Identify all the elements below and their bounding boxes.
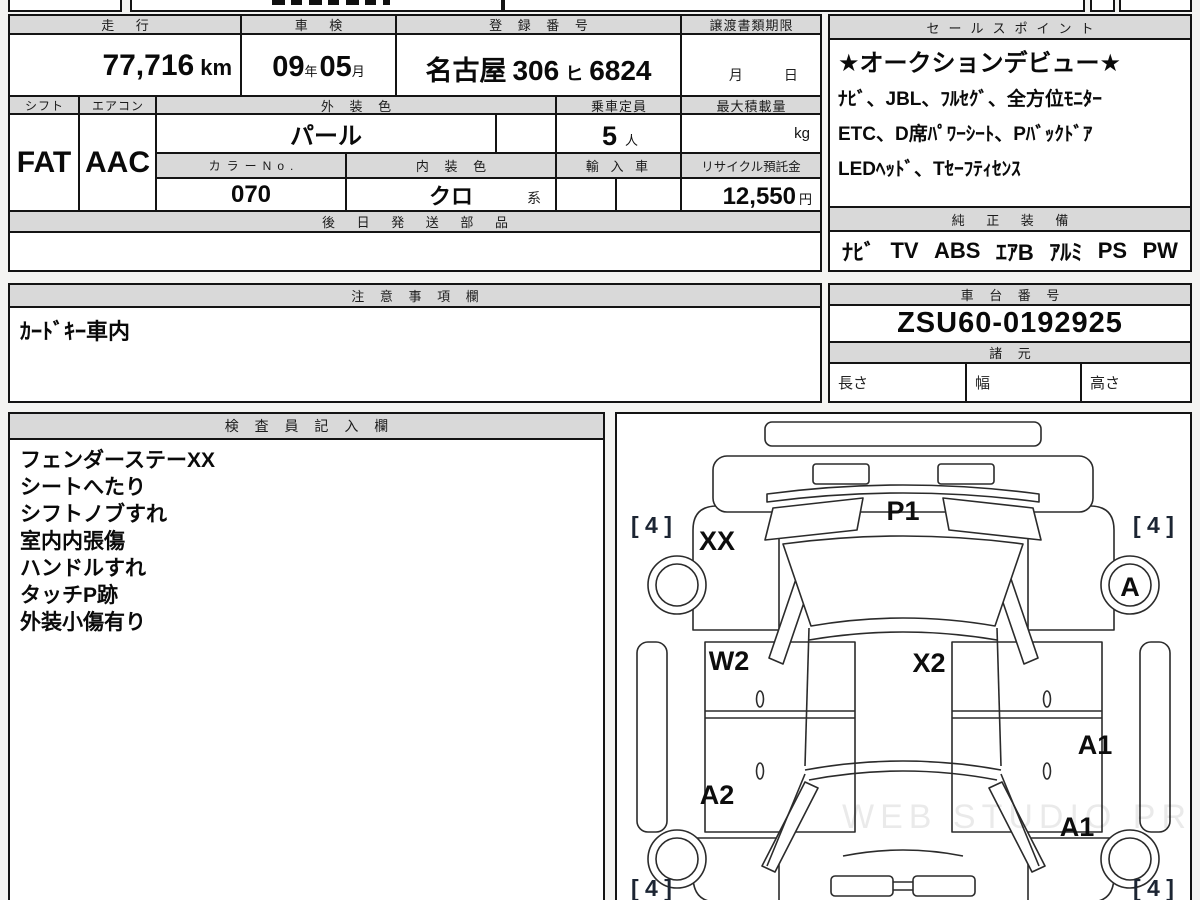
inspector-line: 室内内張傷 [20, 528, 125, 555]
inspection-year-unit: 年 [304, 61, 317, 80]
cutoff-row-cell [130, 0, 503, 12]
door-handle-front-left [757, 691, 764, 707]
mileage-header: 走 行 [10, 16, 242, 35]
bumper-inset-right [938, 464, 994, 484]
max-load-header: 最大積載量 [682, 97, 820, 115]
windshield [783, 536, 1023, 626]
diagram-label-xx: XX [699, 526, 735, 556]
car-damage-diagram: WEB STUDIO PRO P1 XX A X2 W2 A2 A1 A1 [ … [617, 414, 1190, 900]
tread-depth-front-right: [ 4 ] [1133, 512, 1174, 538]
notes-panel: 注 意 事 項 欄 ｶｰﾄﾞｷｰ車内 [8, 283, 822, 403]
door-handle-rear-right [1044, 763, 1051, 779]
diagram-label-a: A [1120, 572, 1140, 602]
cutoff-row-cell [1090, 0, 1115, 12]
inspector-header: 検 査 員 記 入 欄 [10, 414, 603, 440]
inspection-header: 車 検 [242, 16, 397, 35]
rocker-strip-left [637, 642, 667, 832]
sales-line: LEDﾍｯﾄﾞ、Tｾｰﾌﾃｨｾﾝｽ [838, 152, 1021, 187]
cutoff-row-cell [1119, 0, 1192, 12]
aircon-value: AAC [85, 146, 150, 180]
capacity-unit: 人 [625, 130, 638, 149]
fender-rear-left [693, 838, 779, 900]
sales-points-header: セールスポイント [830, 16, 1190, 40]
exterior-color-cell: パール [157, 115, 497, 154]
transfer-month-label: 月 [729, 65, 743, 85]
import-car-cell-a [557, 179, 617, 212]
door-handle-front-right [1044, 691, 1051, 707]
bumper-inset-left [813, 464, 869, 484]
equipment-header: 純 正 装 備 [830, 208, 1190, 232]
equipment-item: ABS [934, 238, 980, 264]
interior-color-suffix: 系 [527, 188, 541, 208]
spec-length-cell: 長さ [830, 364, 967, 401]
inspection-year: 09 [272, 51, 304, 84]
import-car-cell-b [617, 179, 682, 212]
color-no-cell: 070 [157, 179, 347, 212]
inspector-line: 外装小傷有り [20, 609, 146, 636]
interior-color-value: クロ [429, 179, 473, 211]
inspector-line: シートへたり [20, 474, 146, 501]
cutoff-row-cell [503, 0, 1085, 12]
cowl-arc [809, 632, 997, 640]
interior-color-header: 内 装 色 [347, 154, 557, 179]
recycle-unit: 円 [799, 189, 812, 208]
notes-header: 注 意 事 項 欄 [10, 285, 820, 308]
later-parts-body [10, 233, 820, 270]
diagram-label-x2: X2 [912, 648, 945, 678]
mileage-unit: km [200, 55, 232, 81]
door-handle-rear-left [757, 763, 764, 779]
equipment-item: ｱﾙﾐ [1049, 235, 1082, 267]
exterior-color-value: パール [290, 116, 362, 151]
equipment-item: ﾅﾋﾞ [842, 235, 875, 267]
inspector-body: フェンダーステーXX シートへたり シフトノブすれ 室内内張傷 ハンドルすれ タ… [10, 440, 603, 900]
plate-city: 名古屋 [425, 49, 506, 88]
tread-depth-rear-right: [ 4 ] [1133, 875, 1174, 900]
equipment-item: ｴｱB [996, 235, 1034, 267]
fender-front-left [693, 506, 779, 630]
equipment-item: TV [890, 238, 918, 264]
equipment-item: PS [1098, 238, 1127, 264]
max-load-cell: kg [682, 115, 820, 154]
rear-bumper [831, 876, 975, 896]
cutoff-row-cell [8, 0, 122, 12]
main-table: 走 行 車 検 登 録 番 号 譲渡書類期限 77,716 km 09 年 05… [8, 14, 822, 272]
shift-value-cell: FAT [10, 115, 80, 212]
transfer-deadline-cell: 月 日 [682, 35, 820, 97]
diagram-label-w2: W2 [709, 646, 750, 676]
recycle-amount: 12,550 [723, 183, 796, 211]
diagram-label-a1-lower: A1 [1060, 812, 1095, 842]
diagram-label-a2: A2 [700, 780, 735, 810]
shift-header: シフト [10, 97, 80, 115]
plate-kana: ヒ [565, 60, 583, 86]
diagram-label-p1: P1 [886, 496, 919, 526]
capacity-value: 5 [602, 121, 617, 152]
mileage-value: 77,716 [102, 49, 194, 83]
color-no-value: 070 [231, 181, 271, 209]
fender-front-right [1028, 506, 1114, 630]
inspector-panel: 検 査 員 記 入 欄 フェンダーステーXX シートへたり シフトノブすれ 室内… [8, 412, 605, 900]
plate-class: 306 [512, 55, 559, 87]
max-load-unit: kg [794, 125, 810, 142]
recycle-deposit-cell: 12,550 円 [682, 179, 820, 212]
sales-line: ETC、D席ﾊﾟﾜｰｼｰﾄ、Pﾊﾞｯｸﾄﾞｱ [838, 117, 1092, 152]
inspector-line: シフトノブすれ [20, 501, 167, 528]
specs-header: 諸 元 [830, 343, 1190, 364]
watermark-text: WEB STUDIO PRO [842, 798, 1190, 836]
transfer-day-label: 日 [784, 65, 798, 85]
sales-line: ﾅﾋﾞ、JBL、ﾌﾙｾｸﾞ、全方位ﾓﾆﾀｰ [838, 82, 1102, 117]
spec-width-cell: 幅 [967, 364, 1082, 401]
chassis-header: 車 台 番 号 [830, 285, 1190, 306]
transfer-deadline-header: 譲渡書類期限 [682, 16, 820, 35]
later-parts-header: 後 日 発 送 部 品 [10, 212, 820, 233]
car-diagram-box: WEB STUDIO PRO P1 XX A X2 W2 A2 A1 A1 [ … [615, 412, 1192, 900]
tread-depth-rear-left: [ 4 ] [631, 875, 672, 900]
equipment-body: ﾅﾋﾞ TV ABS ｴｱB ｱﾙﾐ PS PW [830, 232, 1190, 270]
aircon-header: エアコン [80, 97, 157, 115]
fender-rear-right [1028, 838, 1114, 900]
sales-line: ★オークションデビュー★ [838, 46, 1121, 82]
capacity-cell: 5 人 [557, 115, 682, 154]
sales-points-body: ★オークションデビュー★ ﾅﾋﾞ、JBL、ﾌﾙｾｸﾞ、全方位ﾓﾆﾀｰ ETC、D… [830, 40, 1190, 208]
interior-color-cell: クロ 系 [347, 179, 557, 212]
auction-sheet: 走 行 車 検 登 録 番 号 譲渡書類期限 77,716 km 09 年 05… [0, 0, 1200, 900]
shift-value: FAT [17, 146, 71, 180]
registration-header: 登 録 番 号 [397, 16, 682, 35]
equipment-item: PW [1142, 238, 1177, 264]
plate-number: 6824 [589, 55, 651, 87]
inspector-line: ハンドルすれ [20, 555, 146, 582]
chassis-value-cell: ZSU60-0192925 [830, 306, 1190, 343]
chassis-number: ZSU60-0192925 [897, 307, 1123, 340]
exterior-color-sub-cell [497, 115, 557, 154]
chassis-specs-panel: 車 台 番 号 ZSU60-0192925 諸 元 長さ 幅 高さ [828, 283, 1192, 403]
sales-points-panel: セールスポイント ★オークションデビュー★ ﾅﾋﾞ、JBL、ﾌﾙｾｸﾞ、全方位ﾓ… [828, 14, 1192, 272]
wheel-front-left [648, 556, 706, 614]
cutoff-text-fragment [272, 0, 390, 5]
aircon-value-cell: AAC [80, 115, 157, 212]
inspection-month-unit: 月 [352, 61, 365, 80]
spec-height-cell: 高さ [1082, 364, 1190, 401]
import-car-header: 輸 入 車 [557, 154, 682, 179]
notes-body: ｶｰﾄﾞｷｰ車内 [10, 308, 820, 401]
inspector-line: フェンダーステーXX [20, 447, 215, 474]
tread-depth-front-left: [ 4 ] [631, 512, 672, 538]
mileage-cell: 77,716 km [10, 35, 242, 97]
registration-cell: 名古屋 306 ヒ 6824 [397, 35, 682, 97]
front-bumper-strip [765, 422, 1041, 446]
inspector-line: タッチP跡 [20, 582, 118, 609]
recycle-deposit-header: リサイクル預託金 [682, 154, 820, 179]
capacity-header: 乗車定員 [557, 97, 682, 115]
inspection-month: 05 [320, 51, 352, 84]
color-no-header: カラーNo. [157, 154, 347, 179]
exterior-color-header: 外 装 色 [157, 97, 557, 115]
diagram-label-a1-upper: A1 [1078, 730, 1113, 760]
notes-line: ｶｰﾄﾞｷｰ車内 [20, 314, 130, 346]
inspection-cell: 09 年 05 月 [242, 35, 397, 97]
